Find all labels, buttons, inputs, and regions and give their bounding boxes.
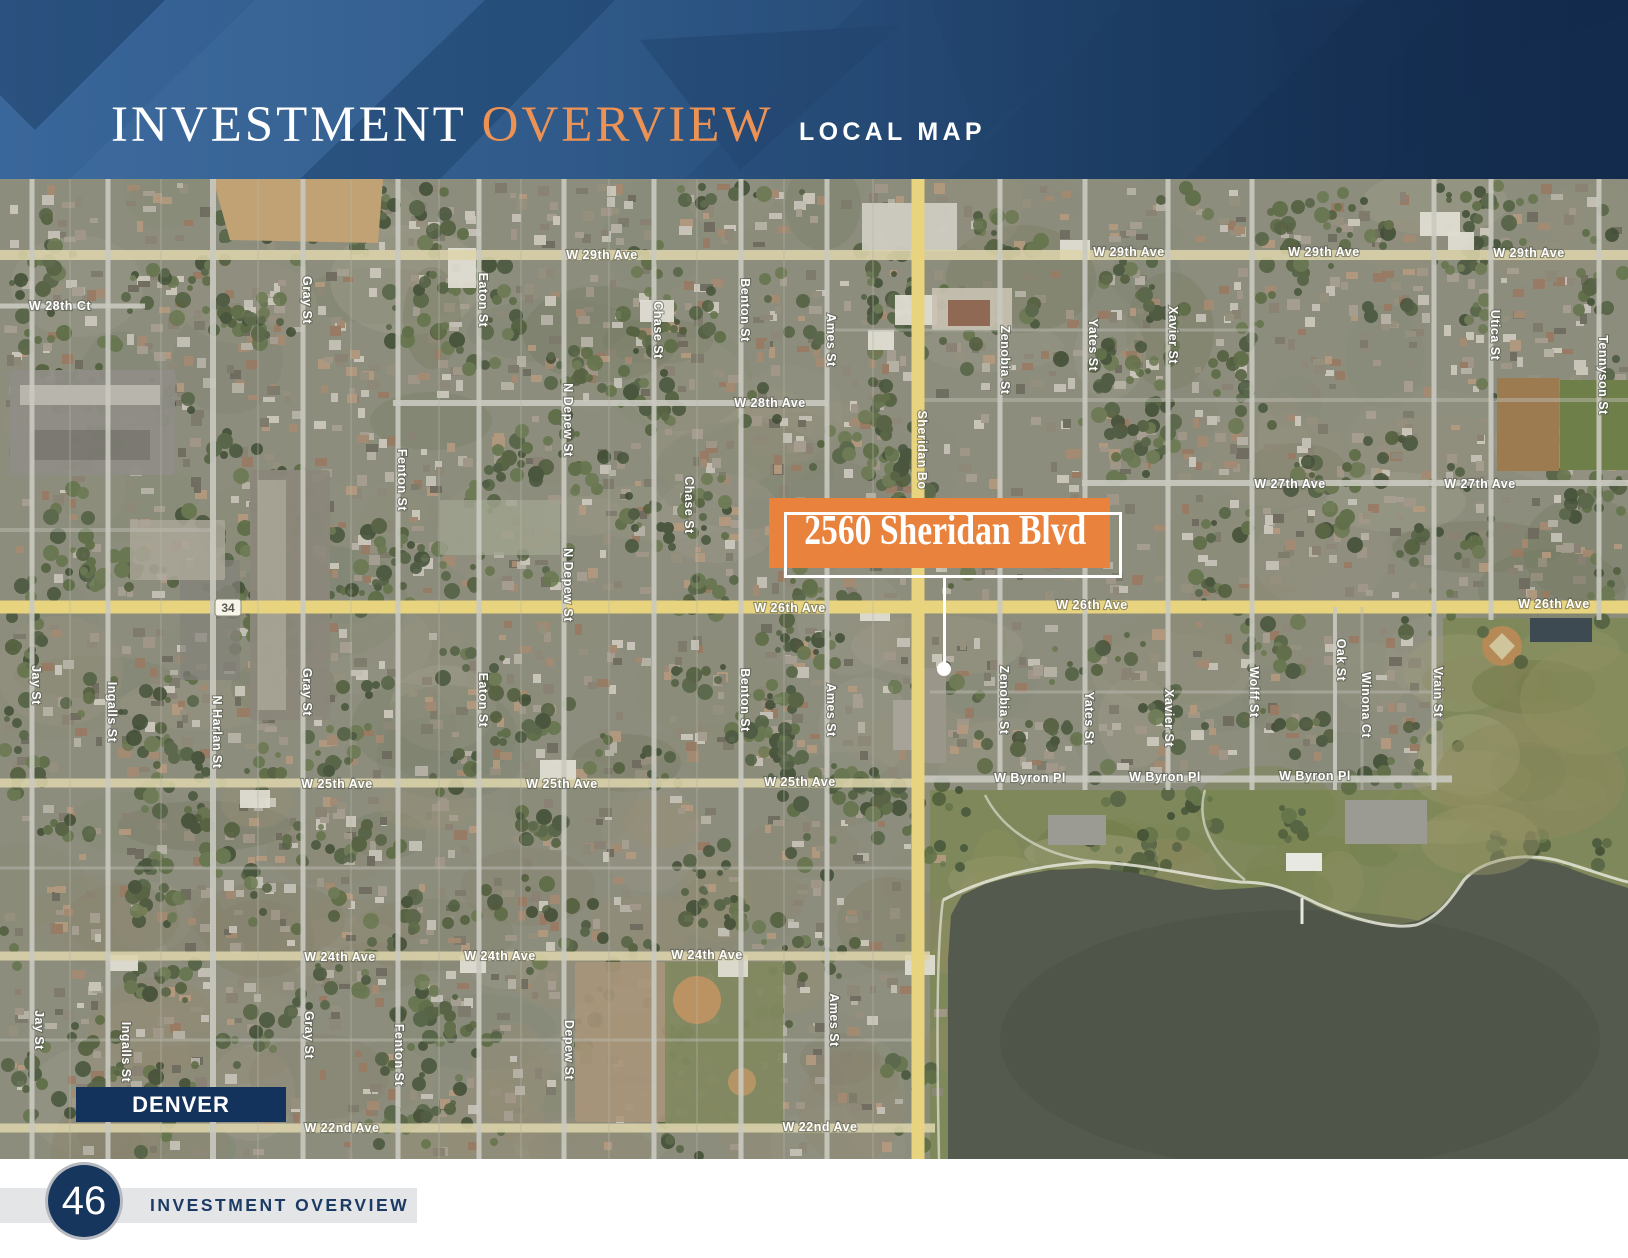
svg-text:Xavier St: Xavier St (1166, 306, 1180, 364)
svg-text:Eaton St: Eaton St (476, 673, 490, 728)
svg-text:W 24th Ave: W 24th Ave (464, 949, 535, 963)
svg-text:Jay St: Jay St (29, 665, 43, 705)
svg-text:N Depew St: N Depew St (561, 548, 575, 622)
svg-text:W 26th Ave: W 26th Ave (1518, 597, 1589, 611)
svg-text:Fenton St: Fenton St (392, 1024, 406, 1086)
svg-text:Gray St: Gray St (300, 276, 314, 324)
svg-text:W Byron Pl: W Byron Pl (994, 771, 1066, 785)
svg-text:Wolff St: Wolff St (1247, 667, 1261, 718)
svg-text:Yates St: Yates St (1086, 319, 1100, 372)
svg-text:W 26th Ave: W 26th Ave (754, 601, 825, 615)
svg-text:W 29th Ave: W 29th Ave (566, 248, 637, 262)
svg-text:Benton St: Benton St (738, 278, 752, 342)
svg-text:Winona Ct: Winona Ct (1359, 672, 1373, 739)
svg-text:Ames St: Ames St (824, 313, 838, 367)
svg-text:W 25th Ave: W 25th Ave (301, 777, 372, 791)
svg-text:Chase St: Chase St (651, 301, 665, 359)
svg-text:Vrain St: Vrain St (1431, 667, 1445, 718)
svg-text:Jay St: Jay St (32, 1010, 46, 1050)
svg-text:Ames St: Ames St (827, 993, 841, 1047)
svg-text:W 22nd Ave: W 22nd Ave (783, 1120, 858, 1134)
svg-text:Depew St: Depew St (562, 1020, 576, 1081)
svg-text:Ames St: Ames St (824, 683, 838, 737)
svg-text:W 27th Ave: W 27th Ave (1254, 477, 1325, 491)
svg-text:W 29th Ave: W 29th Ave (1493, 246, 1564, 260)
svg-text:Eaton St: Eaton St (476, 273, 490, 328)
svg-text:W 28th Ave: W 28th Ave (734, 396, 805, 410)
svg-text:W 29th Ave: W 29th Ave (1288, 245, 1359, 259)
svg-text:W 25th Ave: W 25th Ave (526, 777, 597, 791)
svg-text:W 24th Ave: W 24th Ave (304, 950, 375, 964)
svg-text:Zenobia St: Zenobia St (998, 326, 1012, 395)
svg-text:W Byron Pl: W Byron Pl (1279, 769, 1351, 783)
svg-text:Gray St: Gray St (302, 1011, 316, 1059)
svg-text:Zenobia St: Zenobia St (997, 666, 1011, 735)
svg-text:W Byron Pl: W Byron Pl (1129, 770, 1201, 784)
svg-text:N Harlan St: N Harlan St (210, 696, 224, 769)
svg-text:W 26th Ave: W 26th Ave (1056, 598, 1127, 612)
svg-text:Fenton St: Fenton St (395, 449, 409, 511)
svg-text:Xavier St: Xavier St (1162, 689, 1176, 747)
svg-text:W 24th Ave: W 24th Ave (671, 948, 742, 962)
svg-text:Chase St: Chase St (682, 476, 696, 534)
svg-text:W 27th Ave: W 27th Ave (1444, 477, 1515, 491)
svg-text:Tennyson St: Tennyson St (1596, 335, 1610, 415)
svg-text:W 28th Ct: W 28th Ct (29, 299, 91, 313)
svg-text:W 22nd Ave: W 22nd Ave (305, 1121, 380, 1135)
svg-text:Ingalls St: Ingalls St (105, 682, 119, 743)
svg-text:W 29th Ave: W 29th Ave (1093, 245, 1164, 259)
svg-text:Oak St: Oak St (1334, 639, 1348, 682)
svg-text:34: 34 (221, 601, 235, 615)
svg-text:N Depew St: N Depew St (561, 383, 575, 457)
svg-text:Utica St: Utica St (1488, 310, 1502, 361)
svg-text:Gray St: Gray St (300, 668, 314, 716)
svg-text:Sheridan Bo: Sheridan Bo (915, 410, 929, 489)
svg-text:Yates St: Yates St (1082, 692, 1096, 745)
svg-text:Ingalls St: Ingalls St (119, 1022, 133, 1083)
svg-text:Benton St: Benton St (738, 668, 752, 732)
svg-text:W 25th Ave: W 25th Ave (764, 775, 835, 789)
